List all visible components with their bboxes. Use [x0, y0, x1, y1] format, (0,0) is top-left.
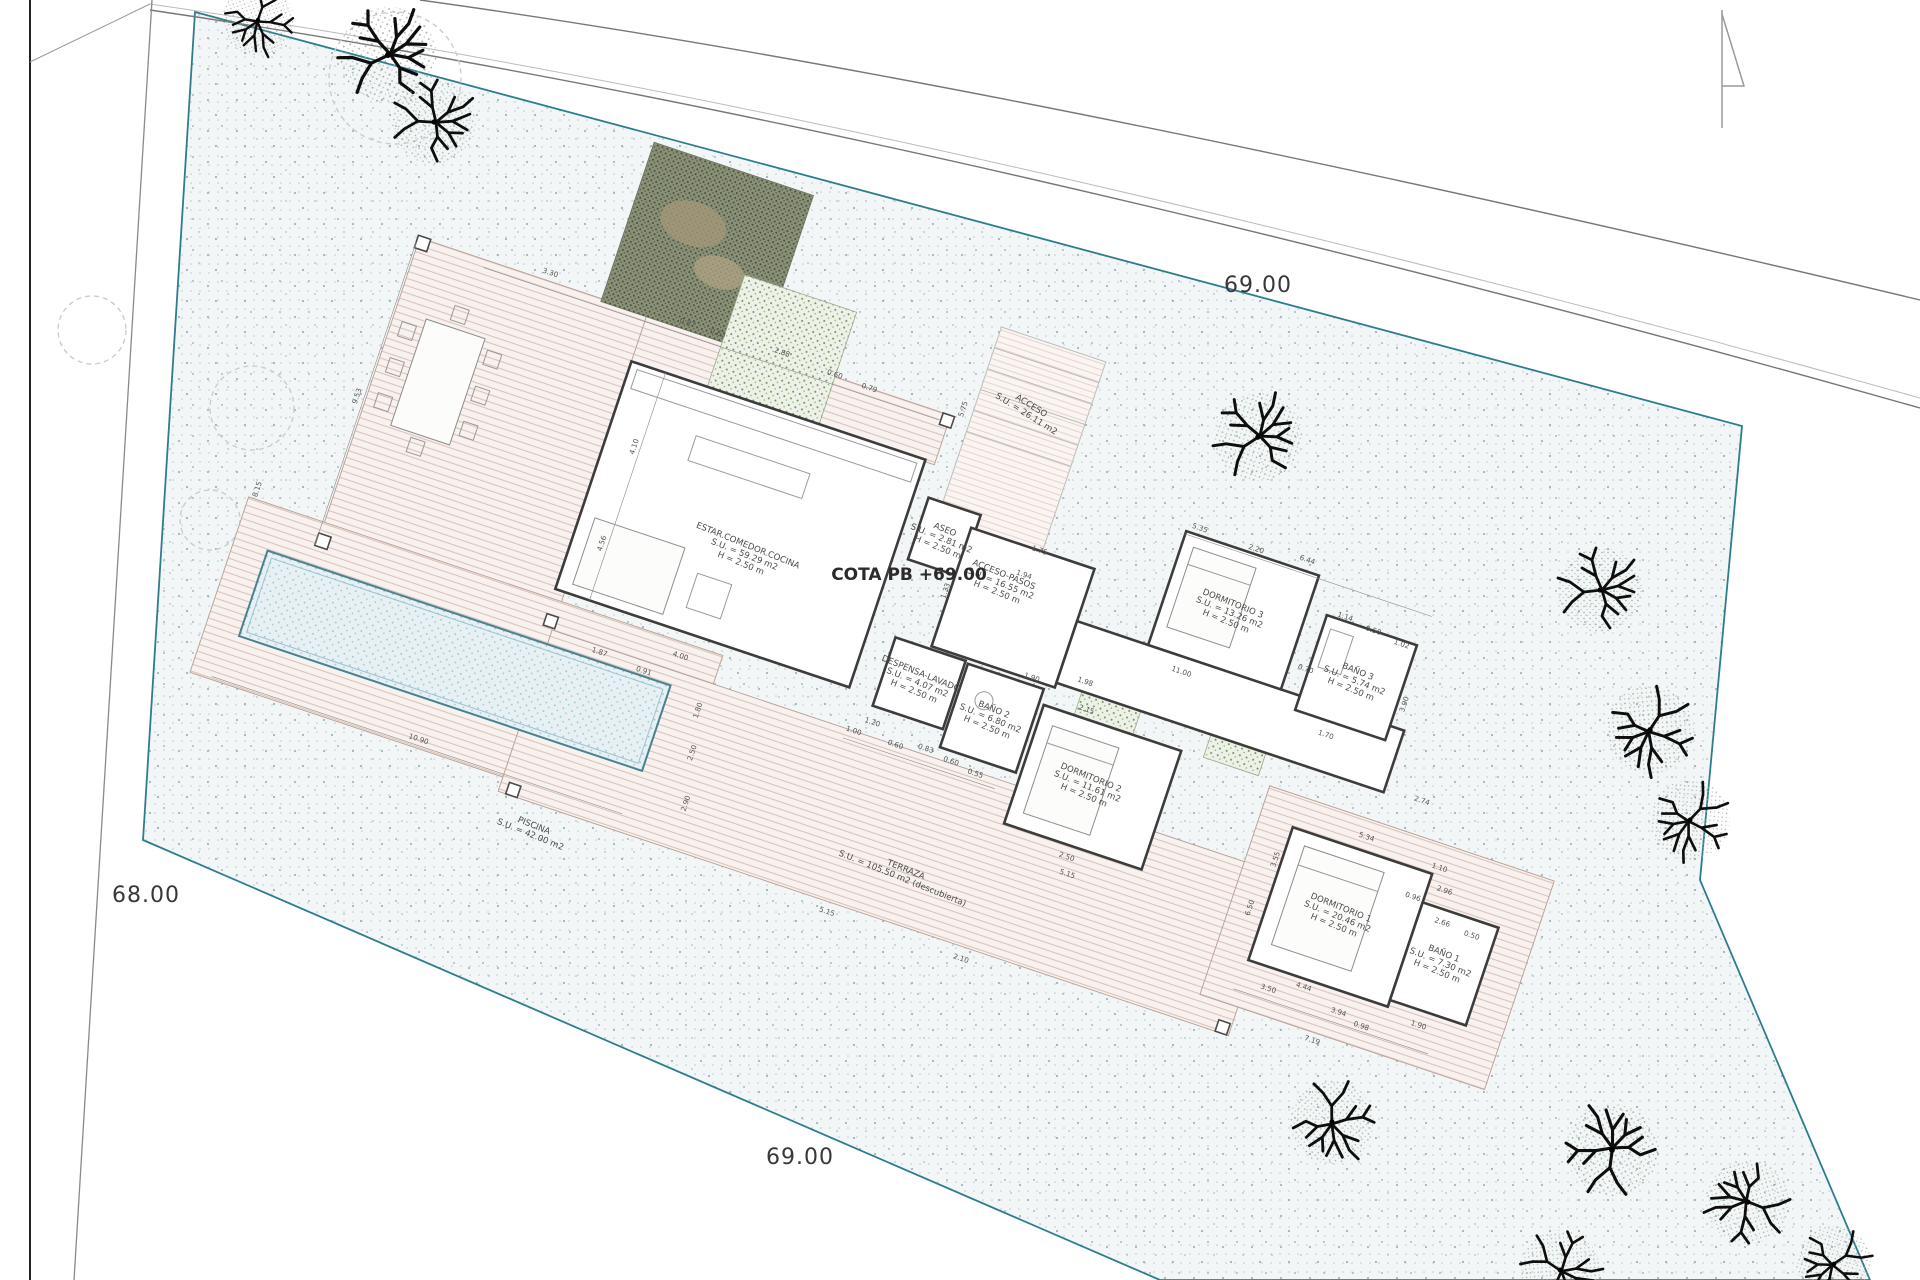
- contour-label-1: 68.00: [112, 883, 180, 908]
- tree-icon: [1558, 548, 1642, 632]
- level-label: COTA PB +69.00: [831, 565, 987, 585]
- site-plan-drawing: 3.300.870.632.880.600.799.538.154.104.56…: [0, 0, 1920, 1280]
- road-left: [74, 0, 152, 1280]
- road-merge-line: [30, 4, 150, 62]
- canopy-outline-tree-icon: [58, 296, 126, 364]
- contour-label-0: 69.00: [1224, 273, 1292, 298]
- contour-label-2: 69.00: [766, 1145, 834, 1170]
- north-arrow-icon: [1722, 10, 1744, 128]
